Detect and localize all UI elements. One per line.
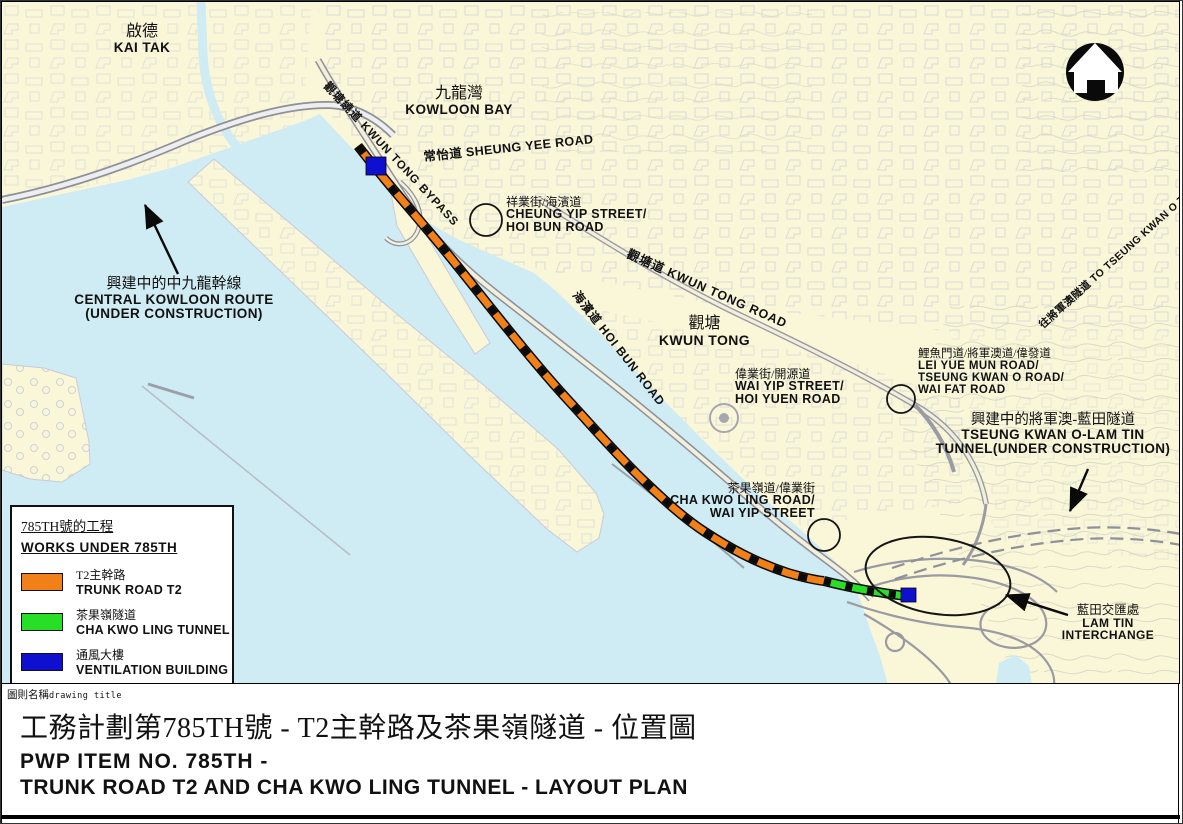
label-lam-tin-interchange: 藍田交匯處 LAM TIN INTERCHANGE: [1037, 604, 1179, 642]
legend-item-trunk-road: T2主幹路 TRUNK ROAD T2: [21, 566, 232, 597]
label-cheung-yip-street: 祥業街/海濱道 CHEUNG YIP STREET/ HOI BUN ROAD: [506, 196, 647, 234]
label-tko-lt-tunnel: 興建中的將軍澳-藍田隧道 TSEUNG KWAN O-LAM TIN TUNNE…: [924, 413, 1180, 456]
hill-contours-top: [542, 12, 812, 152]
legend-box: 785TH號的工程 WORKS UNDER 785TH T2主幹路 TRUNK …: [10, 505, 234, 684]
legend-item-ventilation: 通風大樓 VENTILATION BUILDING: [21, 646, 232, 677]
legend-title-en: WORKS UNDER 785TH: [21, 540, 232, 555]
ventilation-building-south: [901, 588, 916, 602]
drawing-title-cn: 工務計劃第785TH號 - T2主幹路及茶果嶺隧道 - 位置圖: [20, 706, 697, 746]
label-lei-yue-mun-road: 鯉魚門道/將軍澳道/偉發道 LEI YUE MUN ROAD/ TSEUNG K…: [918, 349, 1064, 397]
ventilation-swatch: [21, 653, 63, 671]
drawing-title-label: 圖則名稱drawing title: [7, 687, 122, 702]
legend-item-tunnel: 茶果嶺隧道 CHA KWO LING TUNNEL: [21, 606, 232, 637]
label-wai-yip-street: 偉業街/開源道 WAI YIP STREET/ HOI YUEN ROAD: [735, 368, 844, 406]
trunk-road-swatch: [21, 573, 63, 591]
label-kai-tak: 啟德 KAI TAK: [77, 24, 207, 55]
title-block: 圖則名稱drawing title 工務計劃第785TH號 - T2主幹路及茶果…: [1, 684, 1179, 824]
north-arrow-icon: [1066, 43, 1124, 101]
label-cha-kwo-ling-road: 茶果嶺道/偉業街 CHA KWO LING ROAD/ WAI YIP STRE…: [657, 482, 815, 520]
drawing-title-en-line1: PWP ITEM NO. 785TH -: [20, 750, 268, 774]
title-block-bottom-rule: [2, 815, 1180, 819]
drawing-title-en-line2: TRUNK ROAD T2 AND CHA KWO LING TUNNEL - …: [20, 776, 688, 800]
drawing-sheet: 啟德 KAI TAK 九龍灣 KOWLOON BAY 常怡道 SHEUNG YE…: [0, 0, 1183, 824]
legend-title-cn: 785TH號的工程: [21, 515, 232, 535]
label-kwun-tong: 觀塘 KWUN TONG: [647, 316, 762, 347]
layout-plan-map: 啟德 KAI TAK 九龍灣 KOWLOON BAY 常怡道 SHEUNG YE…: [1, 1, 1180, 684]
label-kowloon-bay: 九龍灣 KOWLOON BAY: [375, 86, 543, 117]
tunnel-swatch: [21, 613, 63, 631]
ventilation-building-north: [366, 157, 386, 175]
label-central-kowloon-route: 興建中的中九龍幹線 CENTRAL KOWLOON ROUTE (UNDER C…: [60, 277, 288, 321]
